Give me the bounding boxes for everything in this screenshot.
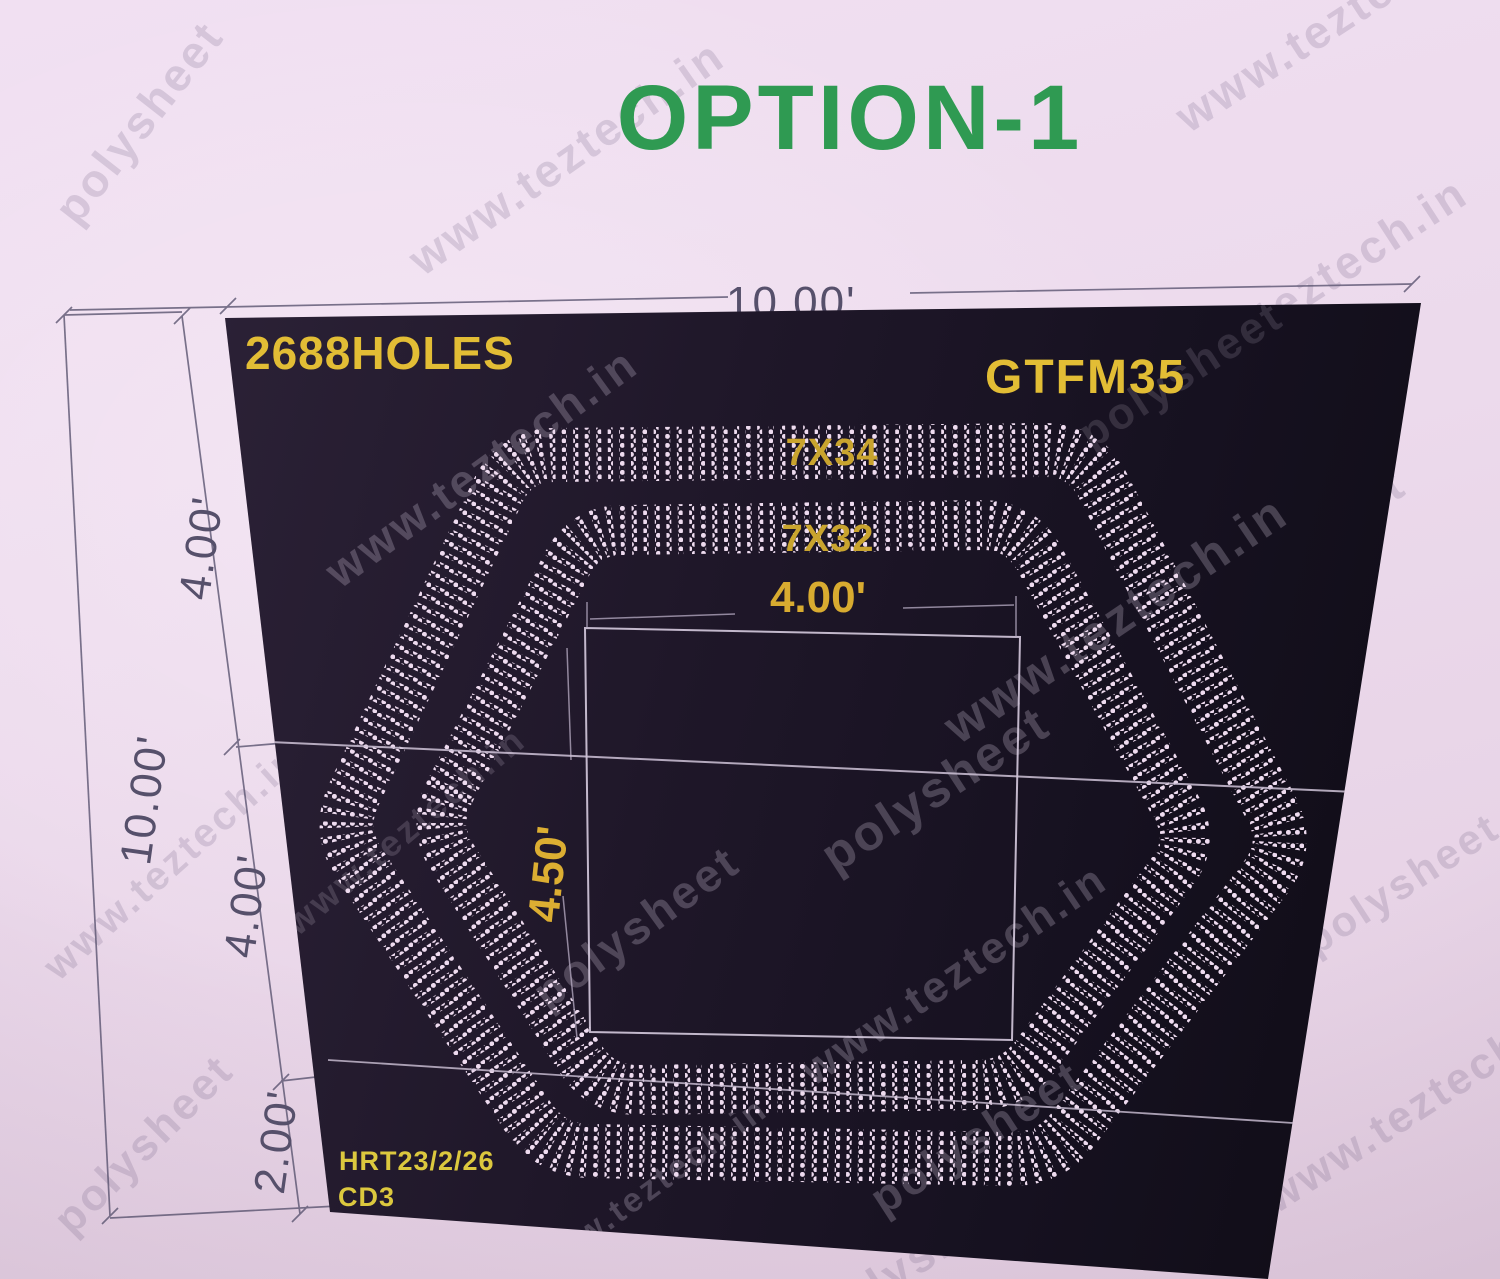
ref-code-line2: CD3 — [338, 1182, 395, 1213]
lower-boundary-line — [328, 1060, 1293, 1123]
inner-row-label: 7X32 — [753, 518, 903, 561]
center-square — [585, 628, 1020, 1040]
holes-count-label: 2688HOLES — [245, 326, 515, 380]
photographed-drawing-sheet: polysheet www.teztech.in www.teztech.in … — [0, 0, 1500, 1279]
drawing-board: www.teztech.in www.teztech.in polysheet … — [215, 290, 1430, 1279]
model-code-label: GTFM35 — [985, 350, 1186, 405]
ref-code-line1: HRT23/2/26 — [339, 1146, 495, 1177]
square-width-dim: 4.00' — [743, 573, 893, 623]
outer-row-label: 7X34 — [757, 432, 907, 475]
